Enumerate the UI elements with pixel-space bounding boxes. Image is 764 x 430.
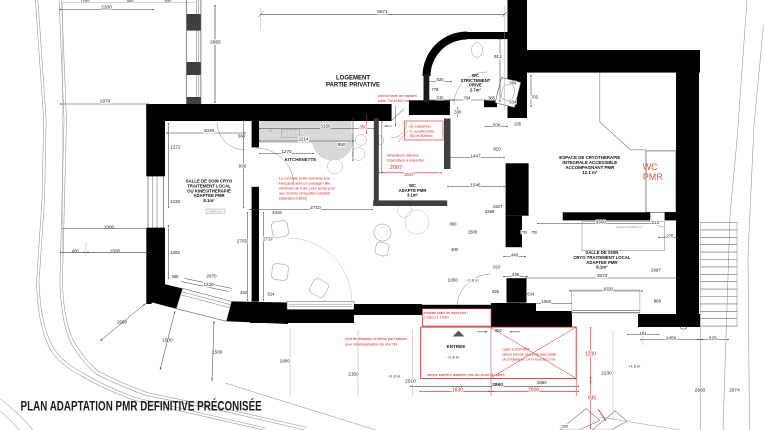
svg-text:3.1m²: 3.1m² <box>407 193 419 198</box>
svg-text:1282: 1282 <box>170 250 181 255</box>
svg-text:3573: 3573 <box>597 273 608 278</box>
svg-text:1500: 1500 <box>110 249 121 254</box>
svg-text:rampe barrière adaptée pmr au: rampe barrière adaptée pmr au choix du c… <box>427 373 506 377</box>
svg-text:455: 455 <box>492 289 500 294</box>
svg-text:1900: 1900 <box>104 225 115 230</box>
svg-text:435: 435 <box>512 272 520 277</box>
svg-text:4326: 4326 <box>272 210 282 215</box>
svg-text:1500: 1500 <box>212 350 223 355</box>
svg-text:emprise palier de repos pmr l: emprise palier de repos pmr l <box>424 311 468 315</box>
svg-text:2.7m²: 2.7m² <box>470 87 482 92</box>
svg-text:860: 860 <box>654 299 662 304</box>
svg-text:wc suspendu: wc suspendu <box>410 125 431 129</box>
svg-text:614: 614 <box>268 292 276 297</box>
svg-text:+1.8 m: +1.8 m <box>447 354 459 359</box>
svg-text:1450: 1450 <box>666 336 677 342</box>
svg-text:935: 935 <box>588 395 597 401</box>
svg-text:1800: 1800 <box>280 359 291 364</box>
svg-text:table de soin 65x185 cm: table de soin 65x185 cm <box>616 226 642 229</box>
svg-text:900: 900 <box>127 0 134 3</box>
svg-text:+1.6 m: +1.6 m <box>629 364 641 368</box>
svg-text:table de soin: table de soin <box>210 210 221 213</box>
svg-text:800: 800 <box>450 222 458 227</box>
svg-text:2230: 2230 <box>601 371 612 377</box>
svg-text:2865: 2865 <box>210 40 221 46</box>
svg-text:235: 235 <box>514 122 522 127</box>
svg-text:2007: 2007 <box>390 165 402 171</box>
svg-text:534: 534 <box>509 100 517 105</box>
svg-text:520: 520 <box>437 77 445 82</box>
svg-text:PARTIE PRIVATIVE: PARTIE PRIVATIVE <box>326 82 380 88</box>
svg-text:1997: 1997 <box>651 267 662 272</box>
svg-text:PMR: PMR <box>643 172 664 182</box>
svg-text:impératives à respecter: impératives à respecter <box>387 159 425 163</box>
svg-text:+1.6 m: +1.6 m <box>388 375 400 379</box>
svg-text:1500: 1500 <box>117 320 128 325</box>
svg-text:PLAN ADAPTATION PMR DEFINITIVE: PLAN ADAPTATION PMR DEFINITIVE PRÉCONISÉ… <box>21 397 262 414</box>
svg-text:400: 400 <box>451 247 459 252</box>
svg-text:joint de dilatation à définir: joint de dilatation à définir par l'arti… <box>344 337 407 341</box>
svg-text:564: 564 <box>238 134 246 139</box>
svg-text:950: 950 <box>338 142 346 147</box>
svg-text:1200: 1200 <box>585 351 596 357</box>
svg-text:508: 508 <box>493 123 501 128</box>
svg-text:(standard 0.83m): (standard 0.83m) <box>279 197 307 201</box>
svg-text:2070: 2070 <box>206 274 217 279</box>
svg-text:2737: 2737 <box>263 237 274 242</box>
svg-text:1537: 1537 <box>404 172 415 177</box>
svg-text:ENTREE: ENTREE <box>447 344 466 349</box>
svg-text:794: 794 <box>464 96 472 101</box>
svg-text:810: 810 <box>493 265 501 270</box>
svg-text:535: 535 <box>437 96 445 101</box>
svg-text:2200: 2200 <box>101 4 112 10</box>
svg-text:330: 330 <box>454 110 462 115</box>
svg-text:2510: 2510 <box>405 379 416 385</box>
svg-text:pour désolidarisation du mur f: pour désolidarisation du mur fini <box>345 343 397 347</box>
svg-text:778: 778 <box>431 87 439 92</box>
svg-text:dimensions internes: dimensions internes <box>387 154 419 158</box>
svg-text:KITCHENETTE: KITCHENETTE <box>285 157 317 162</box>
svg-text:prévoir barre de maintien: prévoir barre de maintien <box>378 94 417 98</box>
svg-text:3309: 3309 <box>596 220 607 225</box>
svg-text:350: 350 <box>359 125 367 130</box>
svg-text:2560: 2560 <box>537 380 547 385</box>
svg-text:2755: 2755 <box>237 239 248 244</box>
svg-text:+1.8 m: +1.8 m <box>467 278 479 282</box>
svg-text:1050: 1050 <box>448 278 459 283</box>
svg-text:181: 181 <box>640 331 648 336</box>
svg-text:1270: 1270 <box>281 149 292 154</box>
svg-text:h. cuvette entre: h. cuvette entre <box>410 129 435 133</box>
svg-text:5871: 5871 <box>377 9 388 15</box>
svg-text:930: 930 <box>239 164 247 169</box>
svg-text:395: 395 <box>562 423 569 428</box>
svg-text:3156: 3156 <box>320 124 331 129</box>
svg-text:4369: 4369 <box>485 209 495 214</box>
svg-text:912: 912 <box>494 54 502 59</box>
svg-text:française aura un passage util: française aura un passage utile <box>279 182 330 186</box>
svg-text:1.63m x L 1.63m: 1.63m x L 1.63m <box>424 316 449 320</box>
svg-text:LOGEMENT: LOGEMENT <box>336 76 370 82</box>
svg-text:2150: 2150 <box>348 372 359 377</box>
svg-text:625: 625 <box>709 336 717 342</box>
svg-text:12.1 m²: 12.1 m² <box>582 170 598 175</box>
svg-text:482: 482 <box>240 290 248 295</box>
svg-text:450 et 500mm: 450 et 500mm <box>410 134 433 138</box>
svg-text:384: 384 <box>509 81 517 86</box>
svg-text:de (mi)largeur 1.4 m tous les: de (mi)largeur 1.4 m tous les 2 m) <box>503 358 556 362</box>
svg-text:1447: 1447 <box>470 154 481 159</box>
svg-text:8.1m²: 8.1m² <box>203 198 215 203</box>
svg-text:1220: 1220 <box>203 282 214 287</box>
svg-text:1630: 1630 <box>452 387 463 393</box>
svg-text:1092: 1092 <box>541 299 551 304</box>
svg-text:1200: 1200 <box>81 0 91 3</box>
svg-text:1272: 1272 <box>170 145 181 150</box>
svg-text:440: 440 <box>511 253 519 258</box>
svg-text:perte à 10% MAX: perte à 10% MAX <box>503 348 531 352</box>
svg-text:2974: 2974 <box>729 388 740 394</box>
svg-text:2000: 2000 <box>528 387 539 393</box>
svg-text:1546: 1546 <box>470 183 481 188</box>
svg-text:634: 634 <box>527 292 535 297</box>
svg-text:400: 400 <box>72 249 80 254</box>
svg-text:830: 830 <box>165 0 172 3</box>
svg-text:2960: 2960 <box>695 388 706 394</box>
svg-text:756: 756 <box>521 230 527 234</box>
svg-text:8.1m²: 8.1m² <box>596 265 608 270</box>
svg-text:1500: 1500 <box>468 230 478 235</box>
svg-text:756: 756 <box>531 230 537 234</box>
svg-text:213: 213 <box>652 220 660 225</box>
svg-text:385: 385 <box>488 96 496 101</box>
svg-text:705: 705 <box>531 95 539 100</box>
svg-text:La nouvelle porte ouvrante à l: La nouvelle porte ouvrante à la <box>279 177 331 181</box>
svg-text:2214: 2214 <box>298 137 309 142</box>
svg-text:(sinon prévoir plus long avec: (sinon prévoir plus long avec palier <box>503 353 558 357</box>
svg-text:1970: 1970 <box>100 99 111 105</box>
svg-text:368: 368 <box>172 274 180 279</box>
svg-text:aux normes rénovation existant: aux normes rénovation existant <box>279 192 330 196</box>
svg-text:810: 810 <box>493 146 501 151</box>
svg-text:270: 270 <box>666 234 674 239</box>
svg-text:2710: 2710 <box>310 205 321 211</box>
svg-text:2026: 2026 <box>204 128 215 133</box>
svg-text:WC: WC <box>643 162 658 172</box>
svg-text:entre 730 et 800 mm: entre 730 et 800 mm <box>378 99 410 103</box>
svg-text:minimum de 0.8m pour accès pmr: minimum de 0.8m pour accès pmr <box>279 187 336 191</box>
svg-text:1220: 1220 <box>170 199 181 204</box>
svg-text:1620: 1620 <box>603 287 614 292</box>
svg-text:2860: 2860 <box>492 382 503 388</box>
